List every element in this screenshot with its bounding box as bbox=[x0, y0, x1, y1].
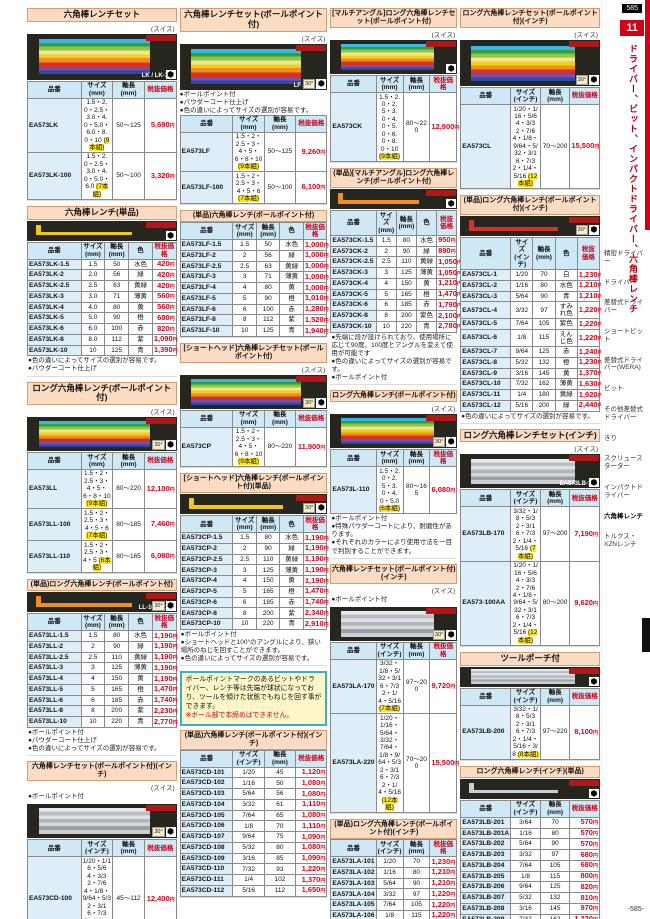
price-cell: 1,190円 bbox=[152, 631, 176, 642]
spec-cell: 6 bbox=[81, 695, 105, 706]
product-photo: 30°⬢ bbox=[330, 414, 457, 448]
table-row: EA573LF-2256緑1,000円 bbox=[180, 250, 327, 261]
table-row: EA573LF-88112紫1,520円 bbox=[180, 315, 327, 326]
table-row: EA573LK-1010125青1,390円 bbox=[28, 345, 177, 356]
spec-cell: 橙 bbox=[129, 313, 153, 324]
spec-table: 品番サイズ (mm)軸長 (mm)税抜価格EA573LF1.5・2・2.5・3・… bbox=[180, 115, 328, 204]
column-header: 税抜価格 bbox=[430, 840, 457, 857]
spec-cell: 2 bbox=[233, 543, 256, 554]
table-row: EA573LF-66100赤1,280円 bbox=[180, 304, 327, 315]
spec-cell: 水色 bbox=[129, 259, 153, 270]
spec-cell: 1.5 bbox=[81, 259, 105, 270]
spec-cell: 3/32・1/8・5/32・3/16・7/32・1/4・5/16 (7本組) bbox=[511, 507, 541, 561]
esco-badge bbox=[426, 608, 456, 614]
table-row: EA573CP-88200紫2,340円 bbox=[180, 608, 327, 619]
table-row: EA573CP-55165橙1,470円 bbox=[180, 586, 327, 597]
table-row: EA573CD-1107/32931,220円 bbox=[180, 864, 327, 875]
spec-cell: 6 bbox=[376, 300, 396, 311]
spec-cell: 黄緑 bbox=[416, 257, 436, 268]
table-row: EA573CL1/20・1/16・5/64・3/32・7/64・1/8・9/64… bbox=[461, 105, 600, 189]
table-row: EA573LB-201A1/1680570円 bbox=[461, 828, 600, 839]
column-header: サイズ (インチ) bbox=[511, 688, 541, 705]
part-number: EA573LK-5 bbox=[28, 313, 82, 324]
part-number: EA573LA-105 bbox=[331, 900, 376, 911]
table-row: EA573LL-1010220青2,770円 bbox=[28, 717, 177, 728]
angle-icon: 30° bbox=[303, 398, 315, 408]
table-row: EA573LB-2033/3297680円 bbox=[461, 850, 600, 861]
spec-cell: 80 bbox=[533, 280, 555, 291]
part-number: EA573LB-201 bbox=[461, 817, 511, 828]
spec-cell: 132 bbox=[533, 357, 555, 368]
column-3: [マルチアングル]ロング六角棒レンチセット(ボールポイント付) (スイス) ⬢ … bbox=[330, 8, 457, 919]
spec-table: 品番サイズ (mm)軸長 (mm)税抜価格EA573LL1.5・2・2.5・3・… bbox=[27, 452, 177, 573]
column-header: 軸長 (mm) bbox=[540, 490, 570, 507]
column-header: 品番 bbox=[180, 223, 233, 240]
spec-cell: 105 bbox=[403, 900, 430, 911]
spec-cell: 5/64 bbox=[376, 878, 403, 889]
table-row: EA573CL-125/16200緑2,440円 bbox=[461, 400, 600, 411]
spec-cell: 7/64 bbox=[376, 900, 403, 911]
spec-cell: 80〜220 bbox=[403, 93, 430, 162]
spec-table: 品番サイズ (インチ)軸長 (mm)税抜価格EA573CD-1011/20451… bbox=[180, 750, 328, 897]
spec-cell: 赤 bbox=[416, 300, 436, 311]
price-cell: 11,900円 bbox=[296, 427, 327, 466]
spec-cell: 220 bbox=[256, 619, 279, 630]
spec-cell: 緑 bbox=[129, 641, 153, 652]
table-row: EA573LB-2075/32132810円 bbox=[461, 893, 600, 904]
spec-cell: 1.5・2・2.5・3・4・5 (6本組) bbox=[81, 541, 113, 573]
price-cell: 1,940円 bbox=[303, 326, 326, 337]
notes-list: ●ボールポイント付●ショートヘッドと100°のアングルにより、狭い場所のねじを回… bbox=[180, 630, 328, 666]
part-number: EA573LF-8 bbox=[180, 315, 233, 326]
column-header: 品番 bbox=[461, 238, 511, 270]
part-number: EA573CK-10 bbox=[331, 321, 376, 332]
column-header: サイズ (mm) bbox=[81, 81, 113, 98]
table-row: EA573CP-1.51.580水色1,190円 bbox=[180, 533, 327, 544]
spec-cell: 70〜200 bbox=[540, 105, 570, 189]
hex-icon: ⬢ bbox=[316, 79, 326, 89]
part-number: EA573CP-3 bbox=[180, 565, 233, 576]
spec-cell: 水色 bbox=[280, 533, 303, 544]
spec-cell: 3/16 bbox=[511, 903, 541, 914]
column-header: サイズ (インチ) bbox=[376, 840, 403, 857]
spec-cell: 1/20 bbox=[376, 857, 403, 868]
table-row: EA573LB-2013/6470570円 bbox=[461, 817, 600, 828]
info-warning: ※ボール部で本締めはできません。 bbox=[186, 712, 322, 721]
table-row: EA573LK-33.071薄黄560円 bbox=[28, 291, 177, 302]
table-row: EA573LB-1703/32・1/8・5/32・3/16・7/32・1/4・5… bbox=[461, 507, 600, 561]
part-number: EA573LL-10 bbox=[28, 717, 82, 728]
spec-cell: 132 bbox=[540, 893, 570, 904]
spec-cell: 8.0 bbox=[81, 334, 105, 345]
spec-cell: 115 bbox=[403, 910, 430, 919]
column-header: 色 bbox=[280, 516, 303, 533]
part-number: EA573LF-6 bbox=[180, 304, 233, 315]
sidebar-item: きり bbox=[604, 435, 648, 443]
spec-table-container: 品番サイズ (mm)軸長 (mm)税抜価格EA573L-1101.5・2.0・2… bbox=[330, 449, 457, 514]
product-photo: 30°⬢ bbox=[460, 216, 600, 236]
spec-cell: 115 bbox=[533, 330, 555, 347]
spec-cell: 110 bbox=[396, 257, 416, 268]
spec-cell: 黄 bbox=[280, 283, 303, 294]
column-header: 軸長 (mm) bbox=[540, 688, 570, 705]
spec-cell: 8 bbox=[233, 315, 256, 326]
column-header: サイズ (インチ) bbox=[511, 490, 541, 507]
origin-label: (スイス) bbox=[330, 402, 457, 413]
spec-cell: 63 bbox=[256, 261, 279, 272]
spec-cell: 薄黄 bbox=[416, 268, 436, 279]
product-photo: 30°⬢ bbox=[180, 494, 328, 514]
price-cell: 2,910円 bbox=[303, 619, 326, 630]
spec-cell: 90 bbox=[256, 543, 279, 554]
section-long-hex-ballpoint-inch-single: (単品)ロング六角棒レンチ(ボールポイント付)(インチ) 品番サイズ (インチ)… bbox=[330, 819, 457, 919]
spec-cell: 水色 bbox=[280, 240, 303, 251]
spec-cell: 165 bbox=[105, 684, 129, 695]
spec-cell: 6 bbox=[233, 304, 256, 315]
column-header: 軸長 (mm) bbox=[540, 800, 570, 817]
spec-cell: 3 bbox=[233, 272, 256, 283]
spec-cell: 1/20・1/16・5/64・3/32・7/64・1/8・9/64・5/32・3… bbox=[81, 857, 113, 919]
esco-badge bbox=[296, 376, 326, 382]
price-cell: 2,100円 bbox=[437, 311, 457, 322]
part-number: EA573LF-100 bbox=[180, 172, 233, 204]
price-cell: 1,190円 bbox=[303, 576, 326, 587]
table-row: EA573CK-2290緑890円 bbox=[331, 246, 457, 257]
part-number: EA573LL-2 bbox=[28, 641, 82, 652]
price-cell: 1,740円 bbox=[152, 695, 176, 706]
spec-cell: 青 bbox=[416, 321, 436, 332]
section-title: 六角棒レンチ(単品) bbox=[27, 206, 177, 220]
part-number: EA573CD-110 bbox=[180, 864, 233, 875]
column-header: サイズ (mm) bbox=[233, 223, 256, 240]
spec-cell: 5/32 bbox=[511, 357, 533, 368]
spec-cell: 80〜165 bbox=[403, 467, 430, 514]
spec-cell: 1.5・2.0・2.5・3.0・4.0・5.0・6.0・8.0・10 (9本組) bbox=[376, 93, 403, 162]
price-cell: 1,220円 bbox=[430, 900, 457, 911]
price-cell: 5,690円 bbox=[144, 98, 176, 152]
column-header: 軸長 (mm) bbox=[105, 242, 129, 259]
spec-cell: 90 bbox=[540, 839, 570, 850]
column-header: 税抜価格 bbox=[430, 76, 457, 93]
price-cell: 1,650円 bbox=[296, 885, 327, 896]
price-cell: 1,190円 bbox=[152, 663, 176, 674]
spec-table: 品番サイズ (mm)軸長 (mm)色税抜価格EA573LK-1.51.550水色… bbox=[27, 242, 177, 357]
column-header: サイズ (mm) bbox=[233, 516, 256, 533]
spec-cell: 2 bbox=[376, 246, 396, 257]
spec-table: 品番サイズ (インチ)軸長 (mm)色税抜価格EA573CL-11/2070白1… bbox=[460, 237, 600, 411]
spec-cell: 5/64 bbox=[511, 839, 541, 850]
column-header: サイズ (インチ) bbox=[81, 840, 113, 857]
price-cell: 1,230円 bbox=[430, 857, 457, 868]
note: ●色の違いによってサイズの選別が容易です。 bbox=[181, 655, 328, 663]
price-cell: 1,220円 bbox=[577, 319, 599, 330]
product-photo: 30°⬢ bbox=[330, 607, 457, 641]
esco-badge bbox=[146, 35, 176, 41]
part-number: EA573CP-5 bbox=[180, 586, 233, 597]
table-row: EA573CP1.5・2・2.5・3・4・5・6・8・10 (9本組)80〜22… bbox=[180, 427, 327, 466]
table-row: EA573LK-1.51.550水色420円 bbox=[28, 259, 177, 270]
notes-list: ●ボールポイント付 bbox=[27, 792, 177, 803]
spec-cell: 橙 bbox=[280, 586, 303, 597]
table-row: EA573LF-3371薄黄1,000円 bbox=[180, 272, 327, 283]
part-number: EA573CP-1.5 bbox=[180, 533, 233, 544]
section-title: (単品)ロング六角棒レンチ(ボールポイント付)(インチ) bbox=[460, 195, 600, 215]
part-number: EA573LB-202 bbox=[461, 839, 511, 850]
spec-table: 品番サイズ (mm)軸長 (mm)色税抜価格EA573LL-1.51.580水色… bbox=[27, 613, 177, 728]
notes-list: ●先端に段が設けられており、使用場所に応じて90度、100度とアングルを変えて使… bbox=[330, 333, 457, 385]
spec-cell: 1/16 bbox=[511, 828, 541, 839]
angle-icon: 30° bbox=[152, 827, 164, 837]
price-cell: 800円 bbox=[570, 871, 600, 882]
spec-cell: 1.5 bbox=[233, 240, 256, 251]
spec-cell: 125 bbox=[105, 663, 129, 674]
spec-table-container: 品番サイズ (mm)軸長 (mm)税抜価格EA573CK1.5・2.0・2.5・… bbox=[330, 75, 457, 162]
section-title: 六角棒レンチセット(ボールポイント付)(インチ) bbox=[330, 564, 457, 584]
price-cell: 2,780円 bbox=[437, 321, 457, 332]
column-header: サイズ (インチ) bbox=[233, 750, 264, 767]
price-cell: 1,390円 bbox=[152, 345, 176, 356]
spec-table: 品番サイズ (インチ)軸長 (mm)税抜価格EA573LA-1011/20701… bbox=[330, 839, 457, 919]
column-header: サイズ (mm) bbox=[81, 242, 105, 259]
part-number: EA573CK-3 bbox=[331, 268, 376, 279]
part-number: EA573CK-4 bbox=[331, 278, 376, 289]
column-header: 品番 bbox=[331, 211, 376, 235]
sidebar-item: インパクトドライバー bbox=[604, 484, 648, 500]
price-cell: 1,210円 bbox=[430, 867, 457, 878]
section-hex-ballpoint-inch-set: 六角棒レンチセット(ボールポイント付)(インチ) (スイス) ●ボールポイント付… bbox=[27, 761, 177, 919]
column-header: 品番 bbox=[180, 410, 233, 427]
part-number: EA573CL-1 bbox=[461, 270, 511, 281]
esco-badge bbox=[296, 495, 326, 501]
spec-cell: 50 bbox=[264, 778, 295, 789]
column-header: 品番 bbox=[28, 81, 82, 98]
spec-cell: 112 bbox=[256, 315, 279, 326]
table-row: EA573CP-2.52.5110黄緑1,190円 bbox=[180, 554, 327, 565]
spec-cell: 10 bbox=[81, 717, 105, 728]
price-cell: 890円 bbox=[437, 246, 457, 257]
table-row: EA573CL-85/32132橙1,230円 bbox=[461, 357, 600, 368]
note: ●パウダーコート仕上げ bbox=[28, 737, 177, 745]
section-title: ツールポーチ付 bbox=[460, 652, 600, 666]
table-row: EA573CD-1111/41021,370円 bbox=[180, 875, 327, 886]
column-header: 税抜価格 bbox=[577, 238, 599, 270]
product-photo: ⬢ bbox=[330, 40, 457, 74]
part-number: EA573CP bbox=[180, 427, 233, 466]
spec-table: 品番サイズ (インチ)軸長 (mm)税抜価格EA573LB-2013/64705… bbox=[460, 800, 600, 919]
note: ●色の違いによってサイズの選別が容易です。 bbox=[461, 413, 600, 421]
sidebar-item: 六角棒レンチ bbox=[604, 513, 648, 521]
spec-cell: 8 bbox=[376, 311, 396, 322]
spec-cell: 150 bbox=[256, 576, 279, 587]
spec-cell: 200 bbox=[533, 400, 555, 411]
spec-table-container: 品番サイズ (インチ)軸長 (mm)色税抜価格EA573CL-11/2070白1… bbox=[460, 237, 600, 411]
spec-cell: 97 bbox=[533, 302, 555, 319]
spec-table-container: 品番サイズ (mm)軸長 (mm)色税抜価格EA573LK-1.51.550水色… bbox=[27, 242, 177, 357]
part-number: EA573LK-2 bbox=[28, 270, 82, 281]
table-row: EA573CK-1010220青2,780円 bbox=[331, 321, 457, 332]
product-photo: LK / LK-100 ⬢ bbox=[27, 34, 177, 80]
notes-list: ●色の違いによってサイズの選別が容易です。 bbox=[460, 412, 600, 423]
table-row: EA573LA-1061/81151,220円 bbox=[331, 910, 457, 919]
note: ●それぞれのカラーにより使用寸法を一目で判別することができます。 bbox=[331, 539, 457, 555]
spec-cell: 4 bbox=[233, 283, 256, 294]
spec-cell: 1/16 bbox=[233, 778, 264, 789]
column-header: サイズ (mm) bbox=[233, 410, 264, 427]
price-cell: 1,000円 bbox=[303, 272, 326, 283]
part-number: EA573CL-4 bbox=[461, 302, 511, 319]
table-row: EA573LF-1001.5・2・2.5・3・4・5・6 (7本組)50〜100… bbox=[180, 172, 327, 204]
spec-cell: 165 bbox=[256, 586, 279, 597]
price-cell: 9,620円 bbox=[570, 561, 600, 645]
spec-cell: 3/64 bbox=[511, 817, 541, 828]
spec-cell: 緑 bbox=[416, 246, 436, 257]
spec-cell: 7/64 bbox=[233, 810, 264, 821]
sidebar-item: ビット bbox=[604, 385, 648, 393]
column-header: 税抜価格 bbox=[303, 223, 326, 240]
spec-cell: 9/64 bbox=[233, 832, 264, 843]
spec-cell: 1.5 bbox=[233, 533, 256, 544]
price-cell: 1,790円 bbox=[437, 300, 457, 311]
price-cell: 1,190円 bbox=[152, 641, 176, 652]
price-cell: 1,470円 bbox=[152, 684, 176, 695]
price-cell: 1,210円 bbox=[577, 280, 599, 291]
table-row: EA573CP-33125薄黄1,190円 bbox=[180, 565, 327, 576]
column-header: 色 bbox=[555, 238, 577, 270]
spec-table-container: 品番サイズ (mm)軸長 (mm)税抜価格EA573CP1.5・2・2.5・3・… bbox=[180, 410, 328, 467]
spec-cell: 2.5 bbox=[233, 554, 256, 565]
spec-cell: 3/32 bbox=[511, 302, 533, 319]
spec-cell: 50 bbox=[105, 259, 129, 270]
spec-cell: 黄緑 bbox=[129, 652, 153, 663]
part-number: EA573CL-12 bbox=[461, 400, 511, 411]
spec-cell: 黄 bbox=[129, 674, 153, 685]
price-cell: 1,230円 bbox=[577, 270, 599, 281]
spec-cell: 3.0 bbox=[81, 291, 105, 302]
column-header: 税抜価格 bbox=[144, 840, 176, 857]
spec-table-container: 品番サイズ (mm)軸長 (mm)色税抜価格EA573CK-1.51.580水色… bbox=[330, 210, 457, 332]
column-header: 軸長 (mm) bbox=[264, 750, 295, 767]
table-row: EA573LK-88.0112紫1,090円 bbox=[28, 334, 177, 345]
spec-cell: 5/64 bbox=[511, 291, 533, 302]
spec-cell: 220 bbox=[396, 321, 416, 332]
hex-icon: ⬢ bbox=[316, 503, 326, 513]
spec-cell: 1.5・2・2.5・3・4・5・6・8・10 (9本組) bbox=[233, 427, 264, 466]
spec-cell: 7/32 bbox=[233, 864, 264, 875]
angle-icon: 30° bbox=[433, 437, 445, 447]
note: ●パウダーコート仕上げ bbox=[180, 99, 328, 107]
spec-table-container: 品番サイズ (インチ)軸長 (mm)税抜価格EA573LA-1011/20701… bbox=[330, 839, 457, 919]
price-cell: 1,220円 bbox=[430, 910, 457, 919]
spec-cell: 2.5 bbox=[81, 652, 105, 663]
section-shorthead-single: [ショートヘッド]六角棒レンチ(ボールポイント付)(単品) 30°⬢ 品番サイズ… bbox=[180, 473, 328, 666]
spec-table: 品番サイズ (mm)軸長 (mm)色税抜価格EA573CK-1.51.580水色… bbox=[330, 210, 457, 332]
section-title: ロング六角棒レンチ(ボールポイント付) bbox=[330, 390, 457, 402]
spec-cell: 5.0 bbox=[81, 313, 105, 324]
column-header: 品番 bbox=[28, 453, 82, 470]
esco-badge bbox=[569, 217, 599, 223]
spec-table-container: 品番サイズ (mm)軸長 (mm)税抜価格EA573LK1.5・2.0・2.5・… bbox=[27, 81, 177, 200]
table-row: EA573-100AA1/20・1/16・5/64・3/32・7/64・1/8・… bbox=[461, 561, 600, 645]
column-header: 税抜価格 bbox=[296, 410, 327, 427]
angle-icon: 30° bbox=[576, 225, 588, 235]
spec-cell: 3 bbox=[233, 565, 256, 576]
spec-cell: 71 bbox=[105, 291, 129, 302]
price-cell: 1,370円 bbox=[296, 875, 327, 886]
table-row: EA573LK-66.0100赤820円 bbox=[28, 324, 177, 335]
price-cell: 2,230円 bbox=[152, 706, 176, 717]
column-header: 品番 bbox=[180, 115, 233, 132]
spec-cell: 1.5 bbox=[81, 631, 105, 642]
spec-cell: 3/16 bbox=[511, 368, 533, 379]
sidebar-item: ドライバー bbox=[604, 279, 648, 287]
price-cell: 1,240円 bbox=[577, 347, 599, 358]
sidebar-item: スクリュースターター bbox=[604, 455, 648, 471]
note: ●ボールポイント付 bbox=[331, 515, 457, 523]
esco-badge bbox=[569, 780, 599, 786]
price-cell: 2,770円 bbox=[152, 717, 176, 728]
spec-cell: 赤 bbox=[280, 597, 303, 608]
angle-icon: 30° bbox=[152, 440, 164, 450]
hex-icon: ⬢ bbox=[166, 601, 176, 611]
price-cell: 6,080円 bbox=[430, 467, 457, 514]
spec-cell: 71 bbox=[256, 272, 279, 283]
price-cell: 15,500円 bbox=[570, 105, 600, 189]
price-cell: 1,190円 bbox=[303, 554, 326, 565]
section-hex-ballpoint-inch-set-la: 六角棒レンチセット(ボールポイント付)(インチ) (スイス) ●ボールポイント付… bbox=[330, 564, 457, 815]
notes-list: ●ボールポイント付●特殊パウダーコートにより、耐磨性があります。●それぞれのカラ… bbox=[330, 514, 457, 558]
notes-list: ●ボールポイント付●パウダーコート仕上げ●色の違いによってサイズの選別が容易です… bbox=[180, 91, 328, 115]
section-long-hex-ballpoint-inch-set: ロング六角棒レンチセット(ボールポイント付)(インチ) (スイス) 30°⬢ 品… bbox=[460, 8, 600, 190]
spec-cell: 80 bbox=[105, 631, 129, 642]
origin-label: (スイス) bbox=[460, 28, 600, 39]
spec-cell: 黄緑 bbox=[280, 261, 303, 272]
spec-cell: 緑 bbox=[555, 400, 577, 411]
price-cell: 7,460円 bbox=[144, 509, 176, 541]
column-header: サイズ (mm) bbox=[81, 453, 113, 470]
spec-cell: 61 bbox=[264, 799, 295, 810]
part-number: EA573CL-3 bbox=[461, 291, 511, 302]
spec-cell: 1/20 bbox=[511, 270, 533, 281]
hex-icon: ⬢ bbox=[316, 398, 326, 408]
spec-cell: 90 bbox=[396, 246, 416, 257]
spec-cell: 90 bbox=[105, 641, 129, 652]
part-number: EA573LK bbox=[28, 98, 82, 152]
spec-cell: 4.0 bbox=[81, 302, 105, 313]
column-header: 色 bbox=[416, 211, 436, 235]
table-row: EA573LA-2201/20・1/16・5/64・3/32・7/64・1/8・… bbox=[331, 714, 457, 813]
part-number: EA573LB-200 bbox=[461, 705, 511, 759]
spec-cell: 70 bbox=[403, 857, 430, 868]
spec-cell: 90 bbox=[533, 291, 555, 302]
part-number: EA573LL bbox=[28, 469, 82, 508]
part-number: EA573LA-106 bbox=[331, 910, 376, 919]
price-cell: 1,920円 bbox=[577, 390, 599, 401]
product-photo: ⬢ bbox=[460, 667, 600, 687]
part-number: EA573LF-5 bbox=[180, 293, 233, 304]
spec-cell: 緑 bbox=[129, 270, 153, 281]
origin-label: (スイス) bbox=[180, 32, 328, 43]
part-number: EA573LK-8 bbox=[28, 334, 82, 345]
spec-cell: 115 bbox=[540, 871, 570, 882]
part-number: EA573CL-10 bbox=[461, 379, 511, 390]
product-photo: 30°⬢ bbox=[27, 804, 177, 838]
spec-cell: 185 bbox=[256, 597, 279, 608]
esco-badge bbox=[146, 593, 176, 599]
hex-icon: ⬢ bbox=[589, 225, 599, 235]
price-cell: 1,050円 bbox=[437, 257, 457, 268]
price-cell: 9,260円 bbox=[296, 132, 327, 171]
esco-badge bbox=[426, 415, 456, 421]
